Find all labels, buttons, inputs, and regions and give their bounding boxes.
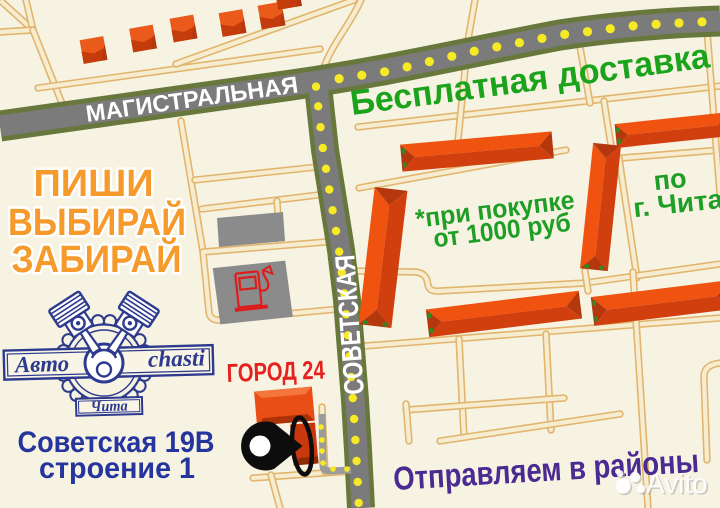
svg-text:ВЫБИРАЙ: ВЫБИРАЙ: [8, 199, 186, 244]
svg-text:ПИШИ: ПИШИ: [34, 163, 154, 205]
svg-text:Авто: Авто: [13, 351, 70, 377]
svg-text:Чита: Чита: [90, 398, 128, 415]
svg-text:ГОРОД 24: ГОРОД 24: [226, 355, 325, 388]
svg-text:chasti: chasti: [148, 345, 206, 371]
svg-text:Avito: Avito: [646, 468, 708, 499]
svg-text:ЗАБИРАЙ: ЗАБИРАЙ: [12, 236, 182, 281]
svg-text:строение 1: строение 1: [39, 452, 195, 485]
